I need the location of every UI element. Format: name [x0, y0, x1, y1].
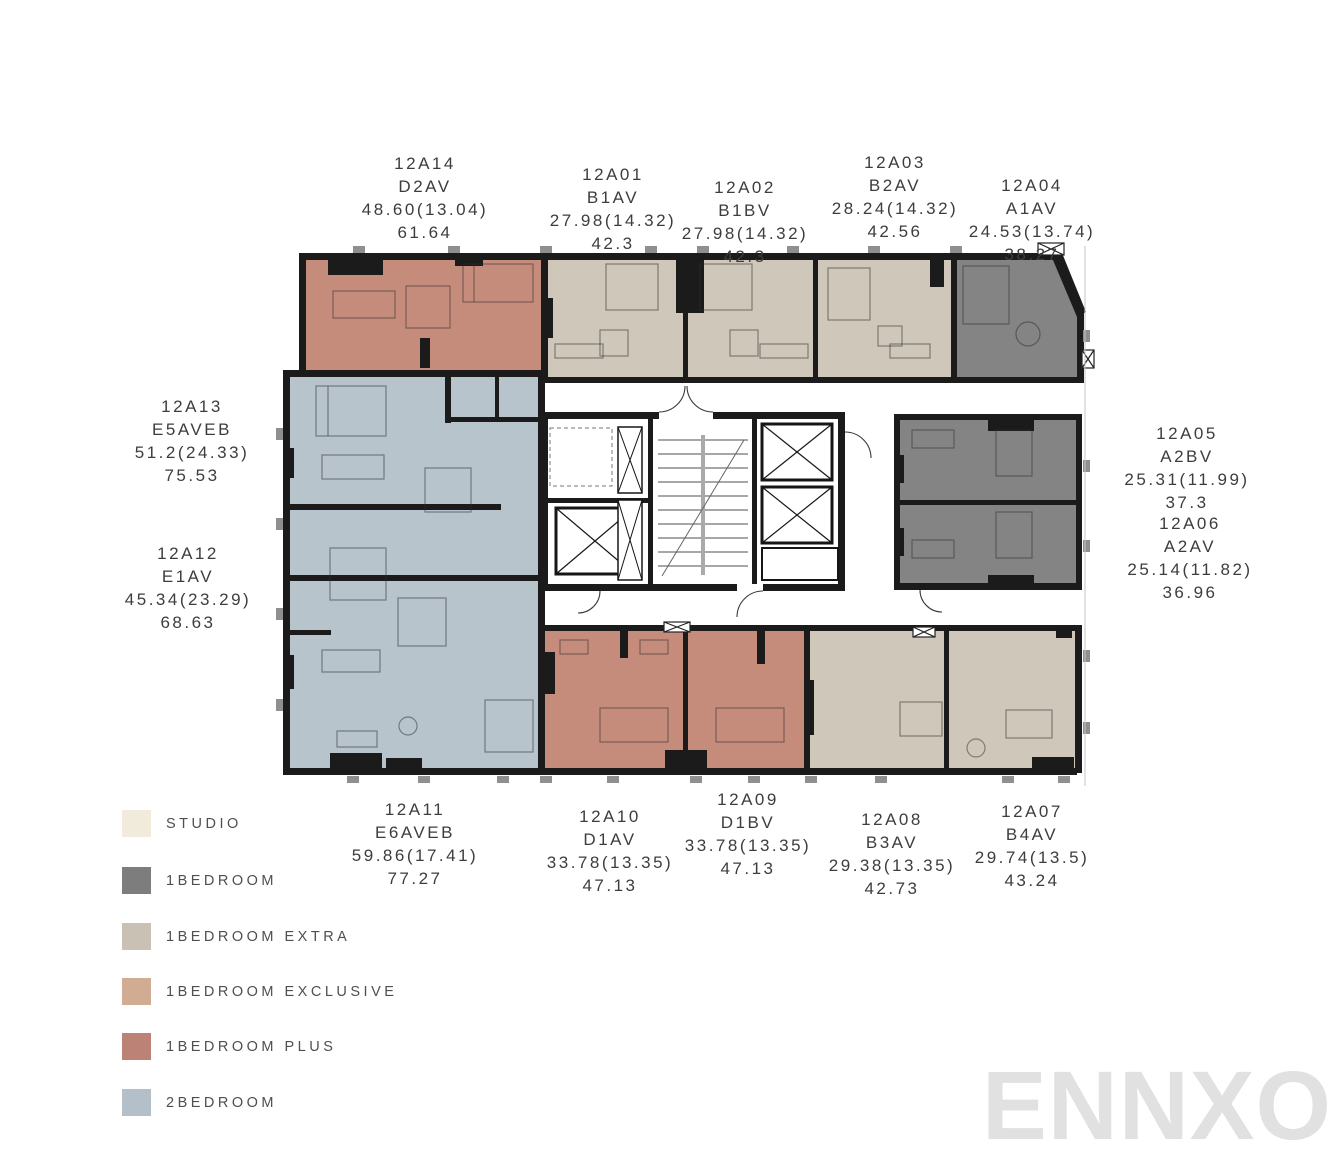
unit-id: 12A12: [125, 542, 251, 565]
unit-label-12A08: 12A08 B3AV 29.38(13.35) 42.73: [829, 808, 955, 900]
legend-label: 1BEDROOM EXCLUSIVE: [166, 984, 397, 1000]
unit-area: 29.74(13.5): [975, 846, 1089, 869]
unit-label-12A04: 12A04 A1AV 24.53(13.74) 38.27: [969, 174, 1095, 266]
unit-area: 29.38(13.35): [829, 854, 955, 877]
unit-area: 25.31(11.99): [1124, 468, 1249, 491]
unit-type: B1AV: [550, 186, 676, 209]
legend-swatch-1bedroom: [122, 867, 151, 894]
unit-area-12A13-12-11: [285, 373, 541, 773]
unit-total-area: 37.3: [1124, 491, 1249, 514]
unit-id: 12A04: [969, 174, 1095, 197]
legend-item-1bedroom-plus: 1BEDROOM PLUS: [122, 1033, 336, 1060]
unit-label-12A10: 12A10 D1AV 33.78(13.35) 47.13: [547, 805, 673, 897]
unit-type: D1BV: [685, 811, 811, 834]
unit-type: B1BV: [682, 199, 808, 222]
unit-area: 33.78(13.35): [685, 834, 811, 857]
unit-type: E6AVEB: [352, 821, 478, 844]
legend-item-2bedroom: 2BEDROOM: [122, 1089, 277, 1116]
legend-label: 1BEDROOM: [166, 873, 277, 889]
unit-total-area: 42.56: [832, 220, 958, 243]
unit-area-12A08-07: [807, 628, 1080, 773]
unit-total-area: 43.24: [975, 869, 1089, 892]
unit-total-area: 36.96: [1127, 581, 1252, 604]
unit-label-12A01: 12A01 B1AV 27.98(14.32) 42.3: [550, 163, 676, 255]
legend-label: 1BEDROOM PLUS: [166, 1039, 336, 1055]
unit-total-area: 42.3: [682, 245, 808, 268]
unit-type: D1AV: [547, 828, 673, 851]
unit-area: 24.53(13.74): [969, 220, 1095, 243]
legend-item-1bedroom-exclusive: 1BEDROOM EXCLUSIVE: [122, 978, 397, 1005]
legend-item-studio: STUDIO: [122, 810, 242, 837]
unit-label-12A03: 12A03 B2AV 28.24(14.32) 42.56: [832, 151, 958, 243]
unit-label-12A14: 12A14 D2AV 48.60(13.04) 61.64: [362, 152, 488, 244]
legend-swatch-1bedroom-exclusive: [122, 978, 151, 1005]
unit-area: 51.2(24.33): [135, 441, 249, 464]
unit-type: D2AV: [362, 175, 488, 198]
unit-total-area: 68.63: [125, 611, 251, 634]
legend-item-1bedroom: 1BEDROOM: [122, 867, 277, 894]
unit-type: B4AV: [975, 823, 1089, 846]
unit-id: 12A03: [832, 151, 958, 174]
unit-id: 12A13: [135, 395, 249, 418]
unit-id: 12A14: [362, 152, 488, 175]
unit-area: 45.34(23.29): [125, 588, 251, 611]
unit-total-area: 42.3: [550, 232, 676, 255]
unit-area: 27.98(14.32): [550, 209, 676, 232]
unit-area: 59.86(17.41): [352, 844, 478, 867]
legend-swatch-2bedroom: [122, 1089, 151, 1116]
watermark: ENNXO: [982, 1050, 1332, 1162]
unit-total-area: 47.13: [685, 857, 811, 880]
unit-total-area: 61.64: [362, 221, 488, 244]
unit-id: 12A07: [975, 800, 1089, 823]
unit-area: 25.14(11.82): [1127, 558, 1252, 581]
unit-label-12A09: 12A09 D1BV 33.78(13.35) 47.13: [685, 788, 811, 880]
unit-type: A2BV: [1124, 445, 1249, 468]
unit-type: B3AV: [829, 831, 955, 854]
unit-id: 12A06: [1127, 512, 1252, 535]
unit-id: 12A09: [685, 788, 811, 811]
legend-label: STUDIO: [166, 816, 242, 832]
legend-swatch-studio: [122, 810, 151, 837]
unit-total-area: 77.27: [352, 867, 478, 890]
unit-area: 48.60(13.04): [362, 198, 488, 221]
legend-item-1bedroom-extra: 1BEDROOM EXTRA: [122, 923, 350, 950]
unit-total-area: 38.27: [969, 243, 1095, 266]
unit-type: E5AVEB: [135, 418, 249, 441]
legend-swatch-1bedroom-extra: [122, 923, 151, 950]
unit-id: 12A11: [352, 798, 478, 821]
unit-area: 27.98(14.32): [682, 222, 808, 245]
unit-type: A2AV: [1127, 535, 1252, 558]
legend-label: 1BEDROOM EXTRA: [166, 929, 350, 945]
unit-id: 12A10: [547, 805, 673, 828]
unit-label-12A12: 12A12 E1AV 45.34(23.29) 68.63: [125, 542, 251, 634]
unit-id: 12A08: [829, 808, 955, 831]
unit-label-12A11: 12A11 E6AVEB 59.86(17.41) 77.27: [352, 798, 478, 890]
unit-total-area: 75.53: [135, 464, 249, 487]
unit-label-12A05: 12A05 A2BV 25.31(11.99) 37.3: [1124, 422, 1249, 514]
unit-id: 12A05: [1124, 422, 1249, 445]
service-room: [762, 548, 838, 580]
unit-id: 12A01: [550, 163, 676, 186]
unit-area: 33.78(13.35): [547, 851, 673, 874]
unit-total-area: 47.13: [547, 874, 673, 897]
unit-label-12A02: 12A02 B1BV 27.98(14.32) 42.3: [682, 176, 808, 268]
unit-type: A1AV: [969, 197, 1095, 220]
unit-total-area: 42.73: [829, 877, 955, 900]
unit-label-12A07: 12A07 B4AV 29.74(13.5) 43.24: [975, 800, 1089, 892]
unit-id: 12A02: [682, 176, 808, 199]
unit-type: B2AV: [832, 174, 958, 197]
legend-swatch-1bedroom-plus: [122, 1033, 151, 1060]
unit-area: 28.24(14.32): [832, 197, 958, 220]
legend-label: 2BEDROOM: [166, 1095, 277, 1111]
unit-type: E1AV: [125, 565, 251, 588]
unit-label-12A13: 12A13 E5AVEB 51.2(24.33) 75.53: [135, 395, 249, 487]
unit-label-12A06: 12A06 A2AV 25.14(11.82) 36.96: [1127, 512, 1252, 604]
